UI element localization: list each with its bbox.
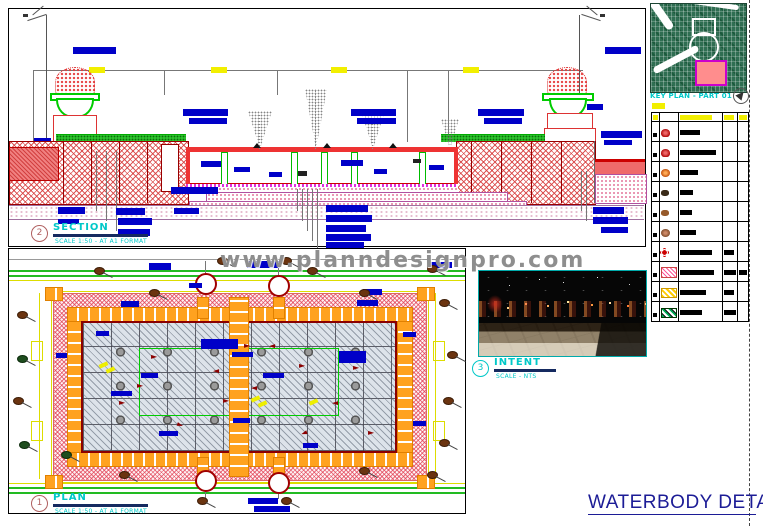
drawing-element (680, 115, 712, 120)
legend-row (652, 302, 749, 322)
drawing-element (653, 213, 657, 217)
column-marker (195, 470, 217, 492)
section-drawing-panel: 2 SECTION SCALE 1:50 - AT A1 FORMAT (8, 8, 646, 247)
drawing-element (724, 290, 734, 295)
drawing-element (660, 182, 679, 202)
section-callout-label: SECTION (53, 222, 109, 233)
north-arrow-icon (733, 88, 749, 104)
drawing-element (147, 141, 148, 203)
drawing-element (478, 109, 524, 116)
drawing-element (23, 14, 28, 17)
drawing-element (680, 190, 693, 195)
drawing-element (429, 165, 444, 170)
drawing-element (116, 151, 117, 231)
drawing-element (31, 421, 43, 441)
drawing-element (277, 70, 278, 95)
drawing-element (27, 14, 46, 21)
drawing-element (586, 171, 587, 221)
drawing-element (689, 32, 719, 62)
drawing-element (31, 341, 43, 361)
legend-symbol-hatch-pink (661, 267, 677, 278)
legend-row (652, 162, 749, 182)
drawing-element (159, 431, 178, 436)
drawing-element (389, 143, 397, 148)
drawing-element (723, 222, 738, 242)
drawing-element (679, 222, 723, 242)
drawing-element (233, 418, 250, 423)
shrub-symbol (94, 267, 105, 275)
drawing-element (660, 162, 679, 182)
drawing-element (39, 293, 40, 479)
shrub-symbol (149, 289, 160, 297)
drawing-element (317, 189, 318, 249)
drawing-element (653, 115, 658, 120)
watermark: www.planndesignpro.com (220, 248, 585, 273)
sheet-title: WATERBODY DETAIL (588, 492, 763, 514)
drawing-element (183, 109, 228, 116)
drawing-element (73, 47, 116, 54)
drawing-element (9, 147, 59, 181)
drawing-element (652, 282, 660, 302)
drawing-element (56, 353, 67, 358)
drawing-element (601, 131, 642, 138)
shrub-symbol (443, 397, 454, 405)
drawing-sheet: 2 SECTION SCALE 1:50 - AT A1 FORMAT KEY … (0, 0, 763, 526)
drawing-element (312, 189, 313, 241)
drawing-element (433, 341, 445, 361)
sheet-trim-line (749, 0, 750, 526)
drawing-element (234, 167, 250, 172)
key-plan-highlight (695, 60, 727, 86)
drawing-element (660, 222, 679, 242)
drawing-element: ► (151, 353, 157, 361)
drawing-element (724, 115, 734, 120)
drawing-element (723, 113, 738, 122)
drawing-element (652, 113, 749, 122)
drawing-element (259, 113, 260, 149)
column-marker (268, 472, 290, 494)
drawing-element (141, 373, 158, 378)
drawing-element: ► (332, 399, 338, 407)
drawing-element (417, 287, 435, 301)
drawing-element (407, 70, 408, 142)
drawing-element (604, 140, 632, 145)
drawing-element (660, 282, 679, 302)
drawing-element (45, 475, 63, 489)
paver-band-right (397, 321, 413, 453)
drawing-element (326, 234, 371, 241)
legend-symbol-shrub-brown (661, 210, 669, 216)
drawing-element (680, 150, 716, 155)
drawing-element: ► (368, 429, 374, 437)
drawing-element (680, 270, 714, 275)
drawing-element (269, 172, 282, 177)
drawing-element (652, 122, 749, 322)
drawing-element (463, 67, 479, 73)
drawing-element (53, 504, 148, 507)
column-marker (268, 275, 290, 297)
drawing-element (679, 302, 723, 322)
drawing-element (232, 352, 253, 357)
drawing-element (738, 222, 749, 242)
legend-symbol-flower-red (661, 249, 668, 256)
drawing-element (211, 67, 227, 73)
drawing-element (567, 323, 646, 356)
drawing-element: ► (251, 384, 257, 392)
legend-row (652, 262, 749, 282)
drawing-element (341, 160, 363, 166)
drawing-element (679, 182, 723, 202)
drawing-element (652, 202, 660, 222)
drawing-element (723, 142, 738, 162)
drawing-element (326, 205, 368, 212)
drawing-element (679, 202, 723, 222)
drawing-element (118, 218, 152, 225)
drawing-element (547, 113, 593, 129)
drawing-element (600, 14, 605, 17)
drawing-element (539, 279, 540, 280)
drawing-element (593, 217, 628, 224)
drawing-element (738, 242, 749, 262)
drawing-element (357, 118, 396, 124)
drawing-element (201, 339, 238, 349)
legend-row (652, 122, 749, 142)
drawing-element (679, 282, 723, 302)
drawing-element (326, 215, 372, 222)
drawing-element (9, 275, 465, 277)
drawing-element (679, 122, 723, 142)
drawing-element (660, 262, 679, 282)
drawing-element (58, 207, 85, 214)
shrub-symbol (427, 471, 438, 479)
drawing-element: ► (223, 397, 229, 405)
fountain-spray (248, 111, 272, 149)
legend-symbol-checker-green (661, 308, 677, 318)
drawing-element (680, 250, 712, 255)
drawing-element (653, 253, 657, 257)
drawing-element (679, 262, 723, 282)
shrub-symbol (439, 299, 450, 307)
drawing-element (201, 161, 221, 167)
plan-callout-scale: SCALE 1:50 - AT A1 FORMAT (55, 508, 147, 515)
drawing-element (351, 109, 396, 116)
drawing-element (679, 113, 723, 122)
drawing-element (595, 174, 647, 204)
drawing-element (595, 162, 645, 174)
drawing-element (652, 162, 660, 182)
drawing-element (248, 498, 278, 504)
drawing-element (331, 67, 347, 73)
drawing-element (653, 193, 657, 197)
plan-drawing-panel: ► ► ► ► ► ► ► ► ► ► ► ► ► ► (8, 248, 466, 514)
drawing-element (96, 331, 109, 336)
drawing-element: ► (269, 342, 275, 350)
legend-symbol-tree-brown (661, 229, 670, 237)
drawing-element (33, 70, 34, 141)
shrub-symbol (359, 467, 370, 475)
drawing-element (679, 142, 723, 162)
drawing-element (724, 310, 736, 315)
drawing-element (680, 290, 706, 295)
intent-reference-photo (478, 270, 647, 357)
drawing-element (677, 3, 739, 10)
drawing-element (650, 3, 675, 31)
drawing-element (653, 293, 657, 297)
drawing-element (739, 270, 747, 275)
section-callout-scale: SCALE 1:50 - AT A1 FORMAT (55, 238, 147, 245)
drawing-element: ► (244, 342, 250, 350)
shrub-symbol (359, 289, 370, 297)
drawing-element (653, 273, 657, 277)
drawing-element (413, 159, 421, 163)
intent-callout-label: INTENT (494, 357, 541, 368)
drawing-element (652, 262, 660, 282)
drawing-element (653, 313, 657, 317)
drawing-element (724, 250, 734, 255)
legend-row (652, 242, 749, 262)
shrub-symbol (119, 471, 130, 479)
drawing-element (723, 202, 738, 222)
drawing-element (601, 227, 628, 233)
drawing-element (723, 302, 738, 322)
drawing-element (605, 47, 641, 54)
fountain-spray (305, 89, 327, 149)
drawing-element (660, 302, 679, 322)
drawing-element (164, 70, 165, 95)
drawing-element (660, 242, 679, 262)
shrub-symbol (19, 441, 30, 449)
plan-callout-label: PLAN (53, 492, 87, 503)
shrub-symbol (197, 497, 208, 505)
drawing-element (653, 153, 657, 157)
drawing-element (273, 297, 285, 319)
drawing-element: ► (299, 362, 305, 370)
drawing-element (692, 18, 716, 36)
drawing-element (45, 287, 63, 301)
drawing-element (189, 283, 202, 288)
drawing-element (587, 104, 603, 110)
drawing-element (374, 169, 387, 174)
drawing-element (161, 144, 179, 192)
drawing-element (111, 391, 132, 396)
drawing-element (297, 189, 298, 211)
drawing-element (561, 141, 562, 203)
shrub-symbol (17, 355, 28, 363)
legend-symbol-tree-red (661, 129, 670, 137)
drawing-element (738, 162, 749, 182)
drawing-element (33, 70, 583, 71)
drawing-element (9, 280, 465, 281)
fountain-jet (321, 152, 328, 185)
drawing-element (171, 187, 218, 194)
drawing-element (738, 302, 749, 322)
drawing-element (433, 421, 445, 441)
legend-table (651, 112, 749, 322)
shrub-symbol (281, 497, 292, 505)
drawing-element (263, 373, 284, 378)
drawing-element (507, 307, 509, 309)
drawing-element (680, 170, 698, 175)
key-plan-map (650, 3, 747, 93)
drawing-element (254, 506, 290, 512)
drawing-element (723, 242, 738, 262)
drawing-element (680, 230, 696, 235)
drawing-element (652, 222, 660, 242)
drawing-element (326, 225, 366, 232)
drawing-element (680, 210, 692, 215)
fountain-jet (351, 152, 358, 185)
fountain-jet (291, 152, 298, 185)
legend-row (652, 222, 749, 242)
paver-cross-strip (229, 297, 249, 477)
drawing-element (738, 142, 749, 162)
drawing-element (121, 301, 139, 307)
intent-callout-scale: SCALE - NTS (496, 373, 536, 380)
drawing-element (403, 332, 416, 337)
drawing-element (339, 351, 366, 363)
drawing-element (660, 122, 679, 142)
drawing-element (723, 282, 738, 302)
drawing-element (197, 297, 209, 319)
drawing-element (53, 234, 148, 237)
drawing-element (106, 151, 107, 221)
drawing-element (738, 262, 749, 282)
drawing-element (484, 118, 522, 124)
drawing-element (531, 141, 532, 203)
drawing-element (723, 122, 738, 142)
legend-row (652, 282, 749, 302)
drawing-element (119, 141, 120, 203)
drawing-element (738, 122, 749, 142)
drawing-element (723, 182, 738, 202)
sheet-title-underline (588, 514, 756, 515)
drawing-element (652, 113, 660, 122)
key-plan-label: KEY PLAN - PART 01 (650, 92, 732, 100)
drawing-element (96, 151, 97, 211)
drawing-element (357, 300, 378, 306)
drawing-element (738, 182, 749, 202)
drawing-element (652, 182, 660, 202)
section-callout-number: 2 (31, 225, 48, 242)
light-pole (46, 15, 47, 143)
plan-callout-number: 1 (31, 495, 48, 512)
legend-header-row (652, 113, 749, 122)
drawing-element (302, 189, 303, 221)
drawing-element (32, 6, 43, 16)
drawing-element (303, 443, 318, 448)
drawing-element (9, 483, 465, 484)
drawing-element (660, 202, 679, 222)
drawing-element (487, 295, 503, 313)
drawing-element (679, 162, 723, 182)
drawing-element (315, 91, 316, 149)
drawing-element (581, 14, 600, 21)
drawing-element (479, 301, 646, 317)
drawing-element (298, 171, 307, 176)
drawing-element (723, 262, 738, 282)
shrub-symbol (17, 311, 28, 319)
drawing-element (739, 115, 747, 120)
drawing-element (581, 171, 582, 211)
drawing-element (653, 233, 657, 237)
drawing-element (724, 270, 736, 275)
drawing-element (89, 67, 105, 73)
drawing-element (63, 141, 64, 203)
drawing-element (652, 242, 660, 262)
drawing-element (189, 118, 227, 124)
drawing-element (149, 263, 171, 270)
drawing-element (307, 189, 308, 231)
drawing-element (593, 207, 624, 214)
drawing-element (652, 142, 660, 162)
legend-row (652, 142, 749, 162)
drawing-element (680, 310, 702, 315)
drawing-element (652, 103, 665, 109)
drawing-element (494, 369, 556, 372)
drawing-element (660, 113, 679, 122)
drawing-element: ► (119, 399, 125, 407)
drawing-element (653, 133, 657, 137)
drawing-element (738, 202, 749, 222)
drawing-element (652, 122, 660, 142)
legend-symbol-tree-red (661, 149, 670, 157)
legend-row (652, 202, 749, 222)
drawing-element (738, 113, 749, 122)
drawing-element (653, 173, 657, 177)
drawing-element (454, 147, 458, 189)
legend-symbol-hatch-yellow (661, 288, 677, 298)
drawing-element: ► (137, 382, 143, 390)
drawing-element (91, 141, 92, 203)
drawing-element (323, 143, 331, 148)
drawing-element (738, 282, 749, 302)
drawing-element (413, 421, 426, 426)
shrub-symbol (61, 451, 72, 459)
fountain-spray (361, 111, 385, 149)
drawing-element: ► (353, 364, 359, 372)
legend-symbol-tree-orange (661, 169, 670, 177)
drawing-element (723, 162, 738, 182)
fountain-jet (221, 152, 228, 185)
legend-row (652, 182, 749, 202)
drawing-element (586, 6, 597, 16)
drawing-element (174, 208, 199, 214)
drawing-element (680, 130, 700, 135)
intent-callout-number: 3 (472, 360, 489, 377)
shrub-symbol (13, 397, 24, 405)
drawing-element (435, 293, 436, 479)
shrub-symbol (447, 351, 458, 359)
drawing-element: ► (213, 367, 219, 375)
drawing-element (9, 487, 465, 489)
drawing-element (116, 208, 145, 215)
fountain-jet (419, 152, 426, 185)
drawing-element (652, 302, 660, 322)
legend-symbol-shrub-dark (661, 190, 669, 196)
drawing-element (735, 89, 746, 100)
drawing-element (660, 142, 679, 162)
shrub-symbol (439, 439, 450, 447)
drawing-element (679, 242, 723, 262)
